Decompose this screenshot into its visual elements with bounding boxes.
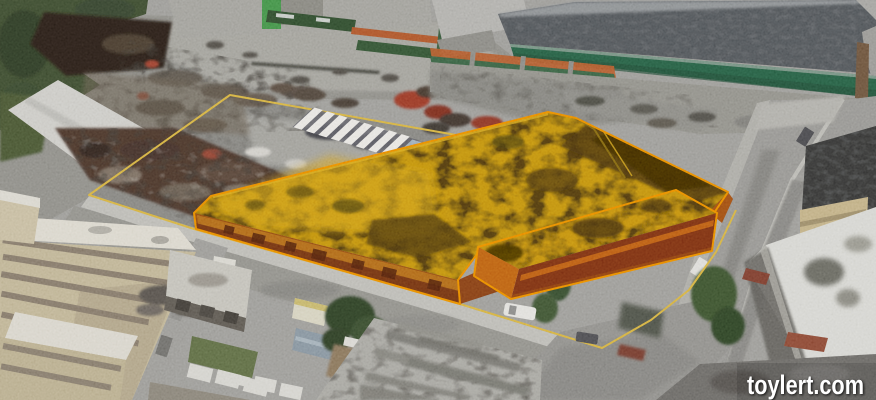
svg-text:toylert.com: toylert.com [747, 370, 864, 400]
